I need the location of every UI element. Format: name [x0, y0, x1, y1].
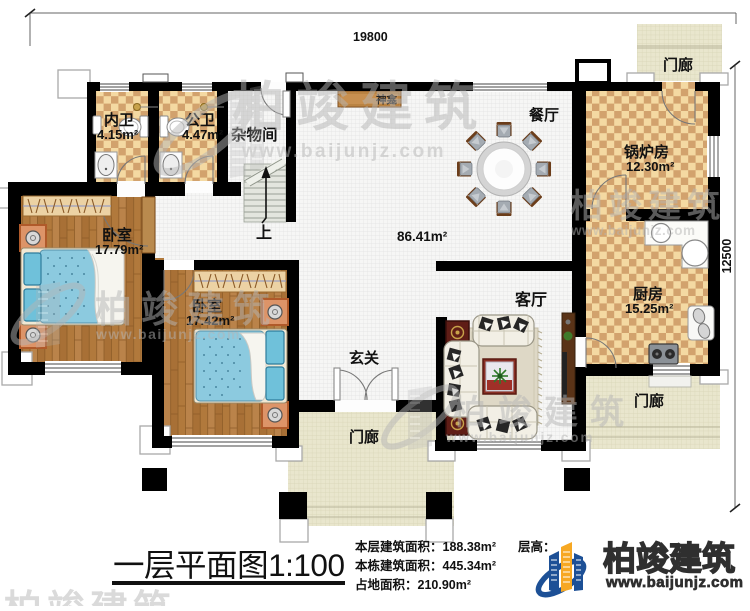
svg-text:柏竣建筑: 柏竣建筑 — [232, 78, 488, 137]
svg-text:柏竣建筑: 柏竣建筑 — [95, 288, 279, 330]
svg-text:www.baijunjz.com: www.baijunjz.com — [445, 430, 595, 445]
svg-text:www.baijunjz.com: www.baijunjz.com — [241, 141, 446, 162]
svg-text:占地面积：210.90m²: 占地面积：210.90m² — [355, 577, 471, 592]
svg-text:上: 上 — [256, 224, 272, 242]
svg-text:4.15m²: 4.15m² — [97, 127, 139, 142]
svg-text:15.25m²: 15.25m² — [625, 301, 674, 316]
svg-text:门廊: 门廊 — [663, 56, 693, 74]
svg-text:19800: 19800 — [353, 30, 388, 44]
svg-text:86.41m²: 86.41m² — [397, 229, 448, 244]
svg-text:柏竣建筑: 柏竣建筑 — [4, 589, 176, 606]
svg-text:柏竣建筑: 柏竣建筑 — [603, 540, 735, 577]
svg-text:17.79m²: 17.79m² — [95, 242, 144, 257]
svg-text:www.baijunjz.com: www.baijunjz.com — [605, 574, 743, 591]
svg-text:层高：: 层高： — [518, 539, 556, 554]
svg-text:客厅: 客厅 — [515, 290, 547, 309]
svg-text:本层建筑面积：188.38m²: 本层建筑面积：188.38m² — [355, 539, 496, 554]
svg-text:柏竣建筑: 柏竣建筑 — [570, 187, 726, 224]
svg-text:餐厅: 餐厅 — [529, 106, 559, 124]
svg-text:4.47m²: 4.47m² — [182, 127, 224, 142]
svg-text:门廊: 门廊 — [634, 392, 664, 410]
svg-text:www.baijunjz.com: www.baijunjz.com — [95, 326, 241, 342]
svg-text:www.baijunjz.com: www.baijunjz.com — [570, 223, 696, 238]
svg-text:本栋建筑面积：445.34m²: 本栋建筑面积：445.34m² — [355, 558, 496, 573]
svg-text:柏竣建筑: 柏竣建筑 — [452, 393, 636, 432]
svg-text:12.30m²: 12.30m² — [626, 159, 675, 174]
svg-text:门廊: 门廊 — [349, 428, 379, 446]
svg-text:12500: 12500 — [720, 239, 734, 274]
svg-text:玄关: 玄关 — [349, 349, 379, 367]
svg-text:一层平面图1:100: 一层平面图1:100 — [113, 547, 345, 583]
